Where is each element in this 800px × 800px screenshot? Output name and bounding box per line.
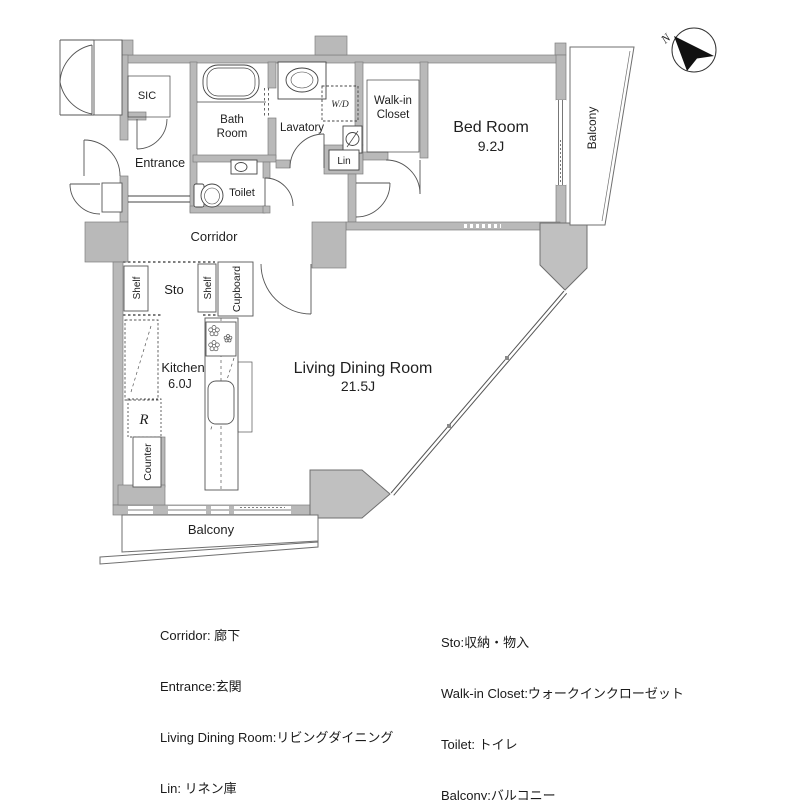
window-mullion-2 [447, 424, 451, 428]
legend-item: Toilet: トイレ [441, 736, 684, 753]
wall-toilet-right-lower [263, 206, 270, 213]
label-balcony-bottom: Balcony [188, 522, 235, 537]
legend-right-column: Sto:収納・物入 Walk-in Closet:ウォークインクローゼット To… [441, 600, 684, 800]
wall-bath-lav-lower [268, 118, 276, 158]
label-sic: SIC [138, 90, 156, 102]
meter-box-door-arc [70, 184, 100, 214]
wall-walkin-bottom [363, 152, 388, 160]
label-lin: Lin [337, 156, 350, 167]
lavatory-door-arc [290, 134, 324, 168]
label-toilet: Toilet [229, 187, 255, 199]
wall-top [122, 55, 565, 63]
meter-box [102, 183, 122, 212]
wall-walkin-bedroom [420, 62, 428, 158]
compass: N [657, 28, 716, 72]
legend-item: Balcony:バルコニー [441, 787, 684, 800]
living-door-arc [261, 264, 311, 314]
legend-item: Entrance:玄関 [160, 678, 393, 695]
wall-vestibule [348, 174, 356, 222]
wall-toilet-right-upper [263, 162, 270, 178]
legend-item: Lin: リネン庫 [160, 780, 393, 797]
label-bath-1: Bath [220, 114, 244, 126]
label-shelf-2: Shelf [203, 276, 214, 299]
label-wd: W/D [331, 100, 349, 110]
label-sto: Sto [164, 282, 184, 297]
label-bath-2: Room [217, 128, 248, 140]
bedroom-door-arc [356, 183, 390, 217]
wall-left-lower [113, 262, 123, 505]
wall-right-lower [556, 185, 566, 223]
sic-door-arc [137, 119, 167, 149]
wall-block-topmid [315, 36, 347, 55]
column-top-right [540, 223, 587, 290]
label-shelf-1: Shelf [132, 276, 143, 299]
legend-item: Sto:収納・物入 [441, 634, 684, 651]
label-kitchen-size: 6.0J [168, 377, 192, 391]
kitchen-cabinet [125, 320, 158, 400]
wall-counter-bottom [118, 485, 165, 505]
legend-item: Corridor: 廊下 [160, 627, 393, 644]
window-diagonal [391, 291, 567, 495]
exterior-door-arc-top [60, 45, 92, 82]
wall-block-left [85, 222, 128, 262]
column-bottom [310, 470, 390, 518]
wall-block-ld-door [312, 222, 346, 268]
wall-sic-bottom [128, 112, 146, 120]
wall-lav-bottom [276, 160, 290, 168]
label-bedroom: Bed Room [453, 119, 529, 136]
wall-bedroom-bottom [346, 222, 560, 230]
wall-bath-lav-upper [268, 62, 276, 88]
wall-stub-topright [555, 43, 566, 55]
counter-return [238, 362, 252, 432]
label-entrance: Entrance [135, 156, 185, 170]
compass-arrow [674, 36, 714, 71]
label-lavatory: Lavatory [280, 122, 324, 134]
legend-left-column: Corridor: 廊下 Entrance:玄関 Living Dining R… [160, 593, 393, 800]
label-kitchen: Kitchen [161, 360, 204, 375]
wall-right-upper [556, 55, 566, 100]
front-door-arc [84, 140, 120, 176]
exterior-door-arc-bottom [60, 82, 92, 114]
exterior-left [60, 40, 122, 214]
wall-stub-topleft [122, 40, 133, 55]
label-ldk-size: 21.5J [341, 378, 375, 394]
label-ldk: Living Dining Room [294, 360, 433, 377]
legend-item: Living Dining Room:リビングダイニング [160, 729, 393, 746]
label-corridor: Corridor [191, 229, 239, 244]
label-refrigerator: R [138, 412, 148, 428]
toilet-basin [235, 163, 247, 172]
label-walkin-1: Walk-in [374, 95, 412, 107]
legend-item: Walk-in Closet:ウォークインクローゼット [441, 685, 684, 702]
floor-plan-page: N SIC Entrance Bath Room Toilet Lavatory… [0, 0, 800, 800]
label-counter: Counter [142, 443, 154, 481]
window-mullion-1 [505, 356, 509, 360]
compass-n-label: N [657, 30, 674, 47]
label-cupboard: Cupboard [231, 266, 243, 312]
kitchen-sink [208, 381, 234, 424]
window-bedroom-right [556, 100, 566, 185]
label-bedroom-size: 9.2J [478, 138, 504, 154]
closet-door-arc [386, 160, 420, 194]
label-balcony-right: Balcony [585, 107, 599, 150]
label-walkin-2: Closet [377, 109, 410, 121]
toilet-door-arc [265, 178, 293, 206]
balcony-right [570, 47, 634, 225]
